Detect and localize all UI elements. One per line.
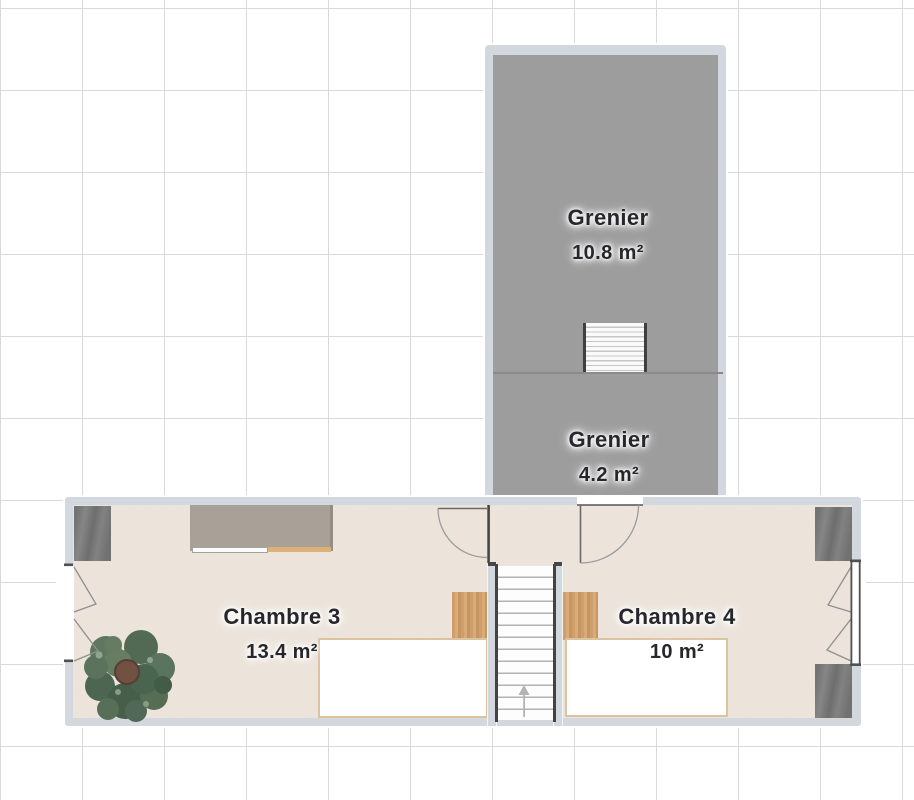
sideboard-wood-edge — [268, 547, 331, 552]
room-name: Grenier — [568, 422, 649, 458]
room-name: Grenier — [567, 200, 648, 236]
staircase-upper — [583, 323, 647, 373]
sideboard-shelf — [192, 547, 268, 553]
attic-divider-line — [493, 372, 723, 374]
label-grenier-small: Grenier 4.2 m² — [568, 422, 649, 492]
stairwell-cap-right — [554, 562, 562, 566]
wardrobe-bottom-right — [815, 664, 852, 718]
wardrobe-top-left — [74, 506, 111, 561]
door-grenier-opening — [577, 497, 643, 505]
headboard-chambre-4 — [563, 592, 598, 640]
room-name: Chambre 3 — [223, 599, 340, 635]
room-area: 10 m² — [618, 635, 735, 669]
window-left-opening — [56, 566, 74, 660]
floor-plan-canvas: Grenier 10.8 m² Grenier 4.2 m² Chambre 3… — [0, 0, 914, 800]
room-area: 13.4 m² — [223, 635, 340, 669]
window-right-opening — [851, 563, 866, 663]
bed-chambre-3 — [318, 638, 488, 718]
staircase-lower — [497, 566, 553, 720]
room-area: 4.2 m² — [568, 458, 649, 492]
label-chambre-4: Chambre 4 10 m² — [618, 599, 735, 669]
wardrobe-top-right — [815, 507, 852, 561]
stairwell-cap-left — [488, 562, 496, 566]
label-grenier-large: Grenier 10.8 m² — [567, 200, 648, 270]
sideboard — [190, 505, 333, 551]
room-name: Chambre 4 — [618, 599, 735, 635]
label-chambre-3: Chambre 3 13.4 m² — [223, 599, 340, 669]
headboard-chambre-3 — [452, 592, 487, 640]
stair-stringer-right — [553, 564, 556, 722]
stair-stringer-left — [495, 564, 498, 722]
room-area: 10.8 m² — [567, 236, 648, 270]
